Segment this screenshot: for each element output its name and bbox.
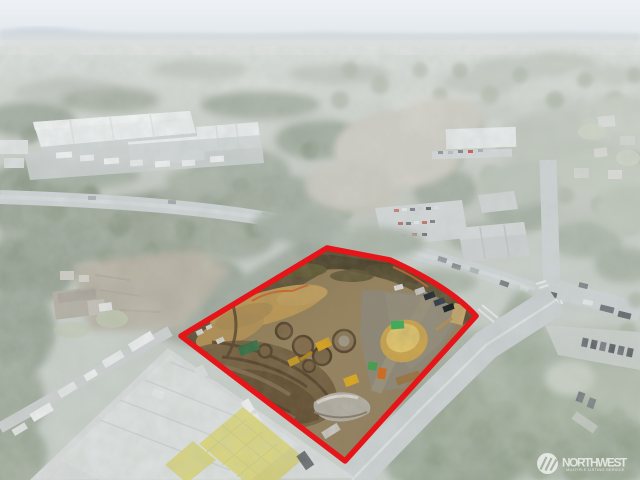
svg-text:MULTIPLE LISTING SERVICE: MULTIPLE LISTING SERVICE — [566, 467, 625, 472]
